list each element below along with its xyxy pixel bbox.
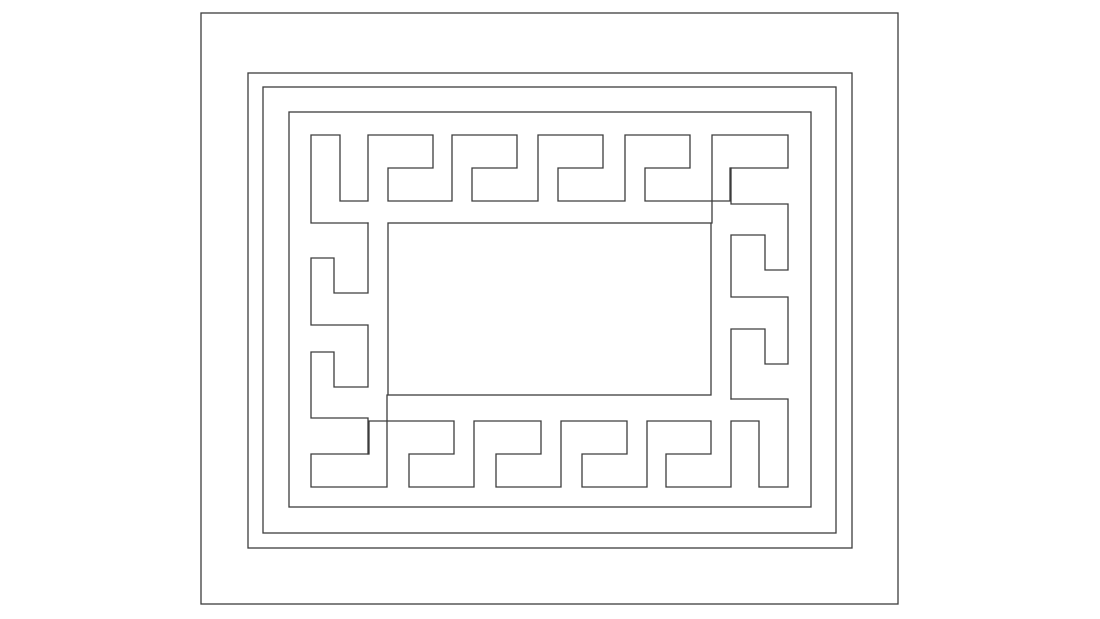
drawing-background	[0, 0, 1100, 619]
greek-key-frame-drawing	[0, 0, 1100, 619]
page	[0, 0, 1100, 619]
